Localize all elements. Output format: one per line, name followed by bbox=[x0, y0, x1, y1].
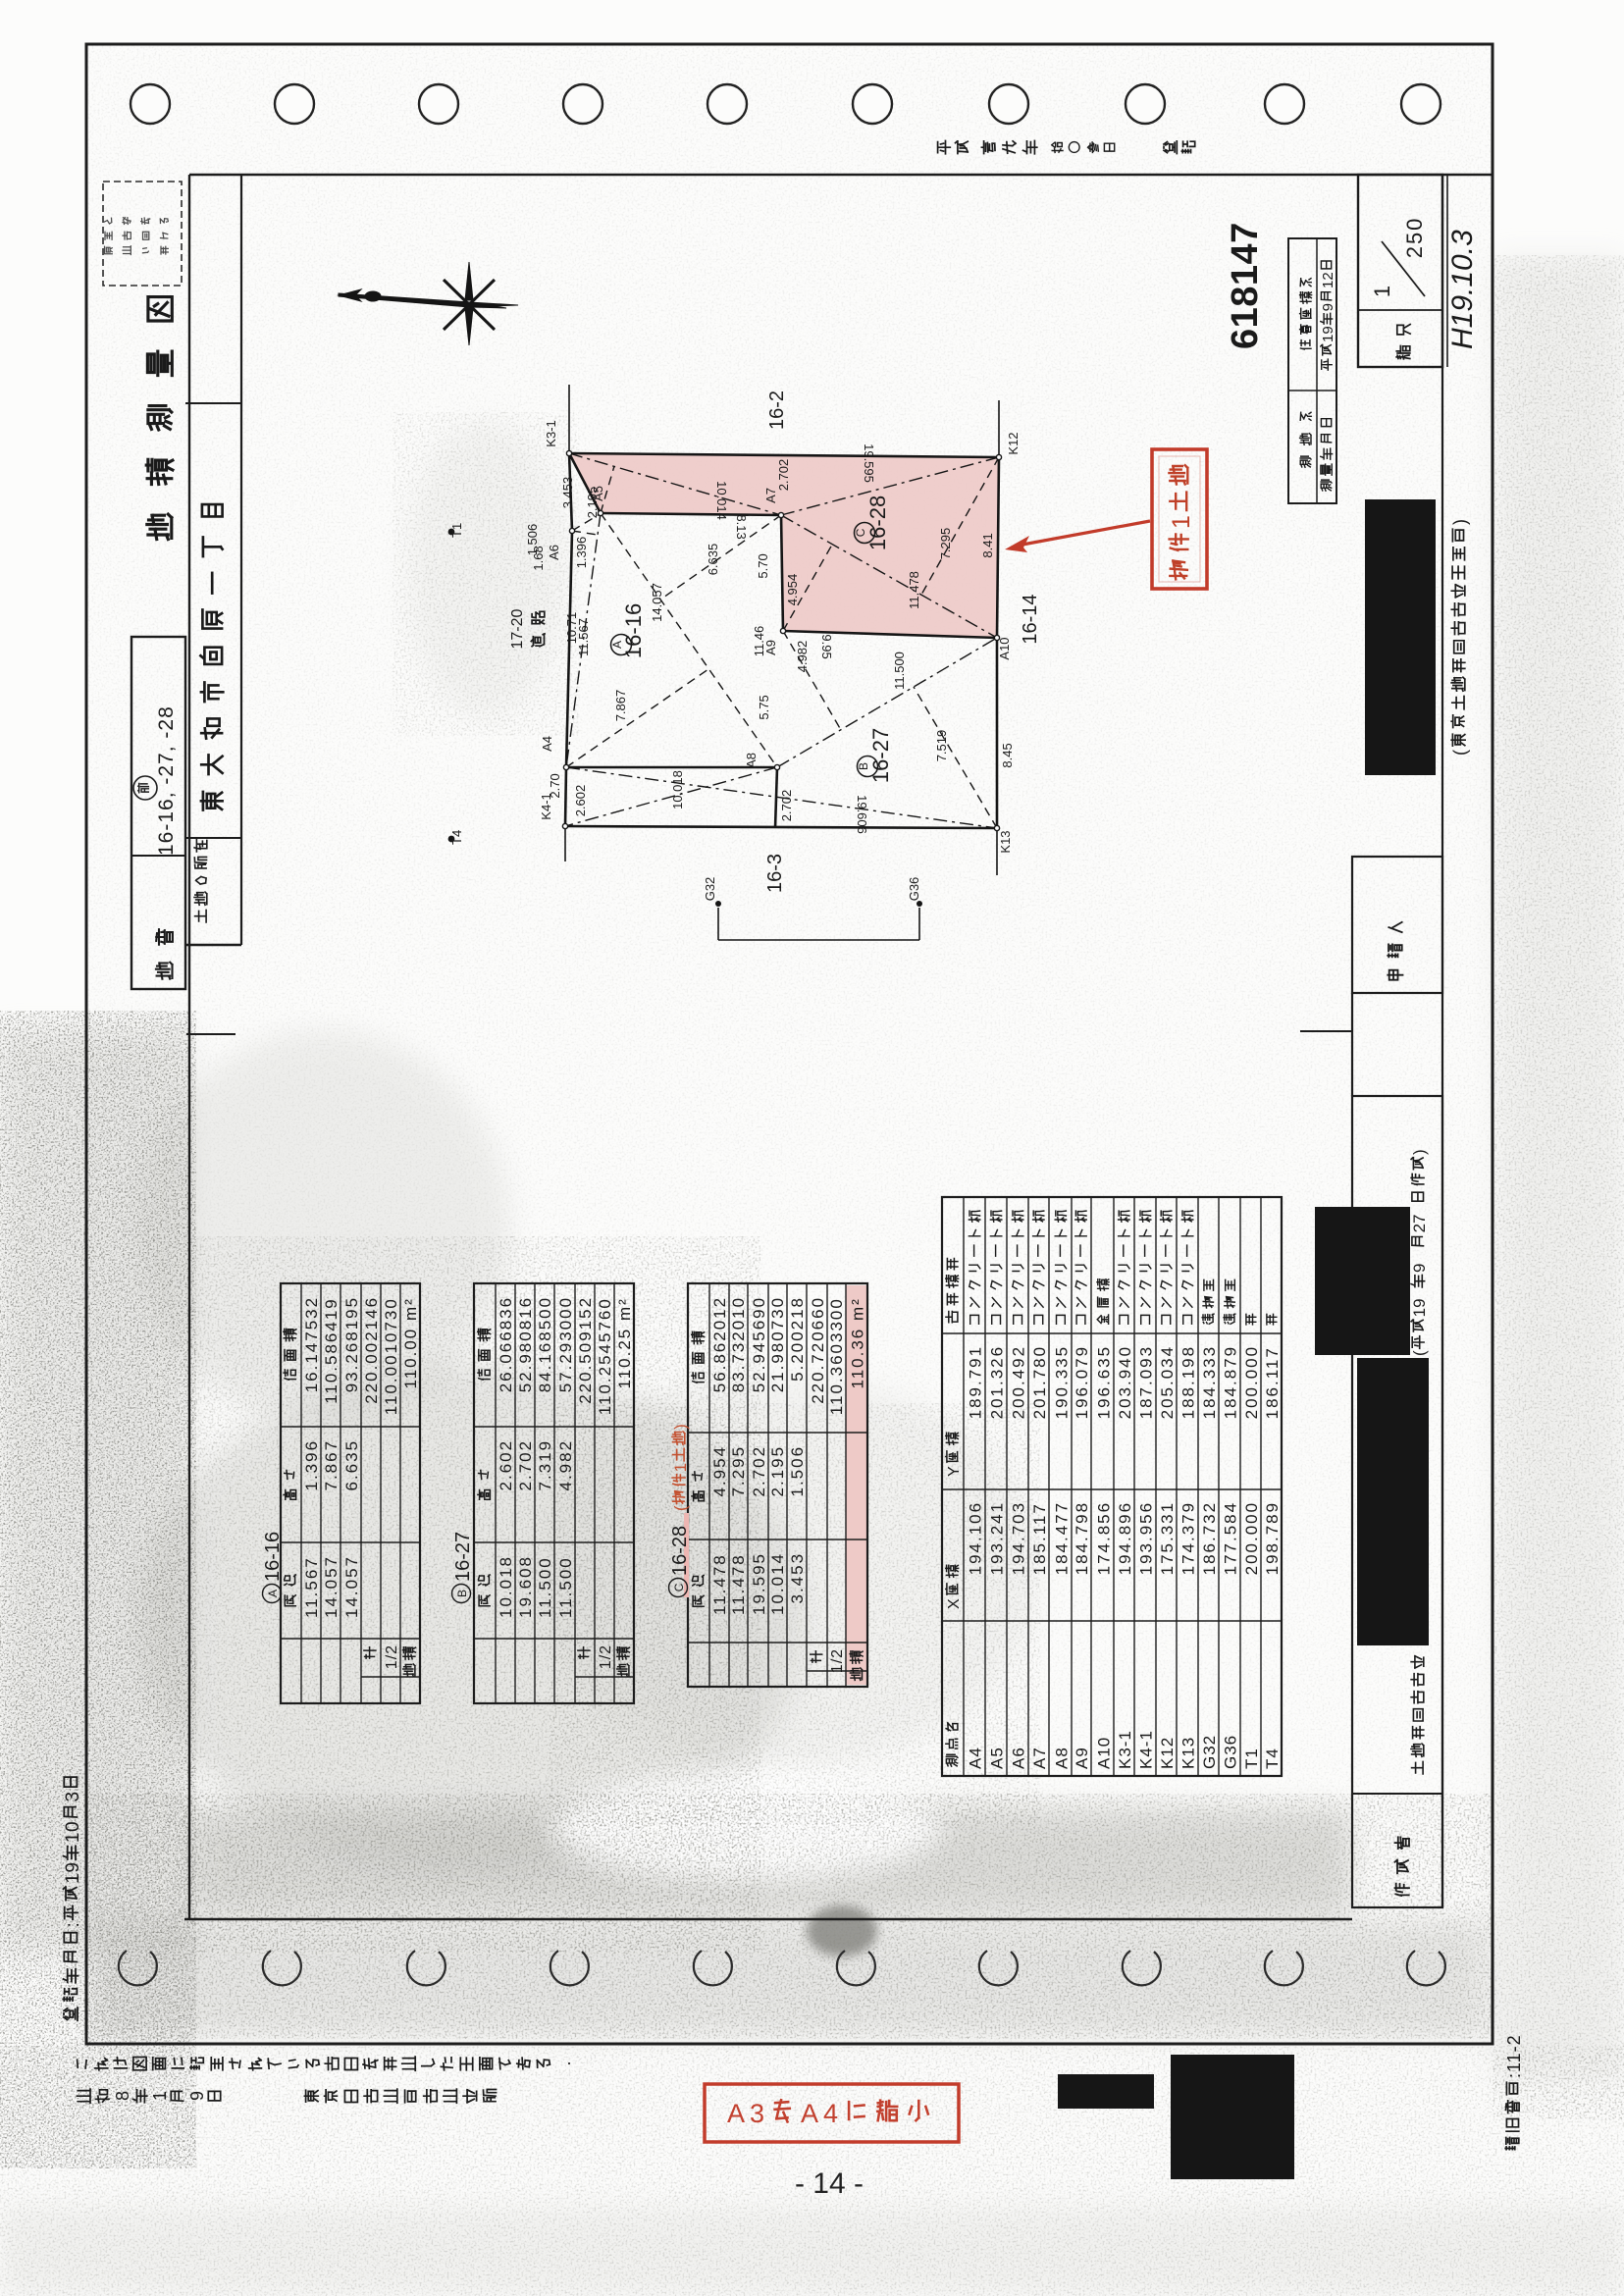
svg-text:A4: A4 bbox=[801, 2099, 843, 2128]
svg-text:A8: A8 bbox=[1052, 1747, 1071, 1769]
svg-text:9: 9 bbox=[187, 2091, 207, 2101]
svg-text:9: 9 bbox=[1410, 1264, 1429, 1273]
svg-text:185.117: 185.117 bbox=[1030, 1502, 1049, 1575]
svg-text:6.635: 6.635 bbox=[342, 1439, 361, 1491]
svg-text:56.862012: 56.862012 bbox=[710, 1296, 729, 1392]
svg-text:4.982: 4.982 bbox=[795, 641, 810, 673]
svg-text:196.079: 196.079 bbox=[1073, 1345, 1091, 1419]
svg-text:): ) bbox=[1450, 518, 1470, 525]
svg-text:2.702: 2.702 bbox=[516, 1439, 535, 1491]
svg-text:5.200218: 5.200218 bbox=[788, 1296, 807, 1382]
svg-text:2.70: 2.70 bbox=[548, 773, 562, 798]
svg-text:184.333: 184.333 bbox=[1200, 1345, 1219, 1419]
svg-text:83.732010: 83.732010 bbox=[729, 1296, 748, 1392]
svg-text:19: 19 bbox=[1410, 1298, 1429, 1317]
svg-text:11.567: 11.567 bbox=[576, 618, 591, 656]
svg-text:184.477: 184.477 bbox=[1052, 1501, 1071, 1575]
svg-text:(: ( bbox=[671, 1505, 690, 1511]
svg-text:7.295: 7.295 bbox=[938, 528, 953, 560]
svg-text:6.635: 6.635 bbox=[706, 544, 720, 576]
svg-text:(: ( bbox=[1450, 749, 1470, 756]
svg-text:.: . bbox=[554, 2061, 574, 2065]
svg-text:10.014: 10.014 bbox=[714, 481, 729, 520]
svg-text:K3-1: K3-1 bbox=[1116, 1730, 1134, 1769]
svg-text:1: 1 bbox=[1370, 286, 1394, 297]
svg-text:186.117: 186.117 bbox=[1263, 1346, 1282, 1419]
svg-text:19.595: 19.595 bbox=[750, 1552, 768, 1615]
svg-text:A6: A6 bbox=[1010, 1747, 1028, 1769]
svg-text:10.018: 10.018 bbox=[497, 1555, 515, 1618]
svg-text:52.980816: 52.980816 bbox=[516, 1296, 535, 1392]
svg-text:- 14 -: - 14 - bbox=[795, 2167, 864, 2200]
svg-text:220.002146: 220.002146 bbox=[362, 1296, 381, 1404]
svg-text:110.586419: 110.586419 bbox=[322, 1297, 341, 1404]
svg-text:3: 3 bbox=[63, 1791, 83, 1801]
svg-text:T1: T1 bbox=[449, 523, 464, 538]
svg-text:H19.10.3: H19.10.3 bbox=[1446, 230, 1479, 349]
svg-text:A8: A8 bbox=[744, 753, 759, 768]
svg-text:194.106: 194.106 bbox=[967, 1501, 985, 1575]
svg-text:A9: A9 bbox=[1073, 1747, 1091, 1769]
svg-text:188.198: 188.198 bbox=[1179, 1345, 1198, 1419]
svg-text:K13: K13 bbox=[998, 830, 1013, 853]
svg-text:A: A bbox=[266, 1590, 280, 1597]
svg-text:10.014: 10.014 bbox=[768, 1552, 787, 1615]
svg-text:G36: G36 bbox=[1222, 1735, 1240, 1769]
svg-text:): ) bbox=[1410, 1149, 1429, 1155]
svg-text:A4: A4 bbox=[967, 1747, 985, 1769]
svg-text:16-16: 16-16 bbox=[621, 603, 646, 658]
svg-text:7.867: 7.867 bbox=[613, 690, 628, 722]
svg-text:X: X bbox=[946, 1596, 963, 1609]
svg-text:B: B bbox=[455, 1590, 469, 1597]
svg-text:12: 12 bbox=[1320, 272, 1336, 288]
svg-text:14.057: 14.057 bbox=[342, 1555, 361, 1618]
svg-text:205.034: 205.034 bbox=[1158, 1345, 1177, 1419]
svg-text:11.500: 11.500 bbox=[556, 1556, 575, 1618]
svg-text:250: 250 bbox=[1402, 217, 1427, 259]
svg-text:11.500: 11.500 bbox=[892, 652, 907, 690]
svg-text:A10: A10 bbox=[997, 637, 1012, 659]
svg-text:8: 8 bbox=[113, 2091, 132, 2101]
svg-text:T1: T1 bbox=[1242, 1748, 1261, 1769]
svg-text:1/2: 1/2 bbox=[829, 1648, 846, 1673]
svg-text:187.093: 187.093 bbox=[1137, 1345, 1156, 1419]
svg-text:1/2: 1/2 bbox=[384, 1644, 400, 1669]
svg-text:A6: A6 bbox=[547, 545, 561, 560]
svg-text:11.46: 11.46 bbox=[752, 626, 766, 657]
svg-text:): ) bbox=[671, 1424, 690, 1430]
svg-text:2.602: 2.602 bbox=[573, 785, 588, 817]
svg-text:200.000: 200.000 bbox=[1242, 1345, 1261, 1419]
svg-text:110.25 m²: 110.25 m² bbox=[615, 1297, 634, 1388]
svg-text:16-2: 16-2 bbox=[766, 391, 788, 430]
svg-text:11.478: 11.478 bbox=[907, 571, 921, 609]
svg-text:220.509152: 220.509152 bbox=[576, 1296, 595, 1404]
svg-text:16-3: 16-3 bbox=[764, 854, 786, 893]
svg-text:7.519: 7.519 bbox=[934, 730, 949, 762]
svg-text:3.453: 3.453 bbox=[560, 477, 575, 509]
svg-text:11.567: 11.567 bbox=[302, 1556, 321, 1618]
svg-text:19.606: 19.606 bbox=[855, 795, 869, 834]
svg-text:110.0010730: 110.0010730 bbox=[382, 1297, 400, 1415]
svg-text:1.506: 1.506 bbox=[788, 1445, 807, 1497]
svg-text:52.945690: 52.945690 bbox=[750, 1296, 768, 1392]
svg-text:16-27: 16-27 bbox=[868, 728, 893, 783]
svg-text:93.268195: 93.268195 bbox=[342, 1296, 361, 1392]
svg-text:G32: G32 bbox=[703, 877, 717, 902]
svg-text:174.856: 174.856 bbox=[1094, 1501, 1113, 1575]
svg-text:7.319: 7.319 bbox=[536, 1439, 554, 1491]
svg-text:17-20: 17-20 bbox=[509, 608, 526, 649]
svg-text:220.720660: 220.720660 bbox=[809, 1296, 827, 1404]
svg-text:11.478: 11.478 bbox=[710, 1553, 729, 1615]
svg-text:14.057: 14.057 bbox=[322, 1555, 341, 1618]
svg-text:(: ( bbox=[1410, 1350, 1429, 1356]
svg-text:21.980730: 21.980730 bbox=[768, 1296, 787, 1392]
svg-text:4.954: 4.954 bbox=[710, 1445, 729, 1497]
svg-text:26.066836: 26.066836 bbox=[497, 1296, 515, 1392]
svg-text:K12: K12 bbox=[1158, 1737, 1177, 1769]
svg-text:1: 1 bbox=[150, 2091, 170, 2101]
svg-text:Y: Y bbox=[946, 1464, 963, 1477]
svg-text:184.798: 184.798 bbox=[1073, 1501, 1091, 1575]
svg-text:201.326: 201.326 bbox=[988, 1345, 1007, 1419]
svg-text:194.703: 194.703 bbox=[1010, 1501, 1028, 1575]
svg-text:8.13: 8.13 bbox=[734, 514, 749, 539]
svg-text:174.379: 174.379 bbox=[1179, 1501, 1198, 1575]
svg-text:G32: G32 bbox=[1200, 1735, 1219, 1769]
svg-text:K12: K12 bbox=[1006, 432, 1021, 454]
svg-text:8.41: 8.41 bbox=[980, 533, 995, 557]
svg-text:618147: 618147 bbox=[1225, 222, 1266, 349]
svg-text:16-28: 16-28 bbox=[865, 496, 890, 550]
svg-text:200.492: 200.492 bbox=[1010, 1345, 1028, 1419]
svg-text:1.68: 1.68 bbox=[531, 546, 546, 570]
svg-text:T4: T4 bbox=[449, 830, 464, 845]
svg-text:2.602: 2.602 bbox=[497, 1439, 515, 1491]
svg-text::: : bbox=[63, 1922, 83, 1928]
svg-text:110.2545760: 110.2545760 bbox=[596, 1297, 614, 1415]
svg-text:16.147532: 16.147532 bbox=[302, 1296, 321, 1392]
svg-text:1.396: 1.396 bbox=[302, 1439, 321, 1491]
svg-text:11.478: 11.478 bbox=[729, 1553, 748, 1615]
svg-text:A5: A5 bbox=[988, 1747, 1007, 1769]
svg-text:2.195: 2.195 bbox=[768, 1445, 787, 1497]
svg-text:1/2: 1/2 bbox=[598, 1644, 614, 1669]
svg-text:2.702: 2.702 bbox=[750, 1445, 768, 1497]
svg-text:203.940: 203.940 bbox=[1116, 1345, 1134, 1419]
svg-text:110.00 m²: 110.00 m² bbox=[401, 1297, 420, 1388]
svg-text:194.896: 194.896 bbox=[1116, 1501, 1134, 1575]
svg-text:5.75: 5.75 bbox=[757, 695, 771, 719]
svg-text:1: 1 bbox=[671, 1463, 690, 1472]
svg-text:193.241: 193.241 bbox=[988, 1501, 1007, 1575]
svg-text:196.635: 196.635 bbox=[1094, 1345, 1113, 1419]
svg-text:16-16: 16-16 bbox=[262, 1532, 284, 1582]
svg-text:186.732: 186.732 bbox=[1200, 1501, 1219, 1575]
svg-text:7.867: 7.867 bbox=[322, 1439, 341, 1491]
svg-text:4.982: 4.982 bbox=[556, 1439, 575, 1491]
svg-text:A10: A10 bbox=[1094, 1737, 1113, 1769]
svg-text:110.36 m²: 110.36 m² bbox=[849, 1297, 867, 1388]
svg-text:57.293000: 57.293000 bbox=[556, 1296, 575, 1392]
svg-text:16-14: 16-14 bbox=[1020, 594, 1041, 644]
svg-text:2.702: 2.702 bbox=[779, 790, 794, 822]
svg-text:110.3603300: 110.3603300 bbox=[827, 1297, 846, 1415]
svg-text:11.500: 11.500 bbox=[536, 1556, 554, 1618]
svg-text:84.168500: 84.168500 bbox=[536, 1296, 554, 1392]
svg-text:K3-1: K3-1 bbox=[544, 420, 558, 446]
svg-text:14.057: 14.057 bbox=[650, 583, 664, 622]
svg-text:184.879: 184.879 bbox=[1222, 1345, 1240, 1419]
svg-text:19: 19 bbox=[63, 1862, 83, 1884]
svg-text:10: 10 bbox=[63, 1821, 83, 1843]
svg-text:G36: G36 bbox=[907, 877, 921, 902]
svg-text:19.595: 19.595 bbox=[862, 444, 876, 483]
svg-text:201.780: 201.780 bbox=[1030, 1345, 1049, 1419]
svg-text:16-16, -27, -28: 16-16, -27, -28 bbox=[155, 705, 178, 856]
svg-text:10.018: 10.018 bbox=[670, 770, 685, 809]
svg-text:175.331: 175.331 bbox=[1158, 1501, 1177, 1575]
svg-text:C: C bbox=[672, 1583, 686, 1592]
svg-text:1.396: 1.396 bbox=[574, 537, 589, 569]
svg-text:A7: A7 bbox=[1030, 1747, 1049, 1769]
svg-text:4.954: 4.954 bbox=[785, 574, 800, 606]
svg-text:19: 19 bbox=[1320, 326, 1336, 342]
svg-text:9.95: 9.95 bbox=[819, 634, 834, 658]
svg-text:A4: A4 bbox=[540, 736, 554, 752]
svg-text:K4-1: K4-1 bbox=[1137, 1730, 1156, 1769]
svg-text:1: 1 bbox=[1168, 513, 1195, 529]
svg-text:27: 27 bbox=[1410, 1214, 1429, 1232]
svg-text:200.000: 200.000 bbox=[1242, 1501, 1261, 1575]
svg-text:190.335: 190.335 bbox=[1052, 1345, 1071, 1419]
svg-text:3.453: 3.453 bbox=[788, 1552, 807, 1604]
svg-text:8.45: 8.45 bbox=[1000, 743, 1015, 767]
svg-text:9: 9 bbox=[1320, 303, 1336, 311]
svg-text:19.608: 19.608 bbox=[516, 1555, 535, 1618]
svg-text:T4: T4 bbox=[1263, 1748, 1282, 1769]
svg-text:2.195: 2.195 bbox=[585, 487, 600, 519]
svg-text:K13: K13 bbox=[1179, 1737, 1198, 1769]
svg-text:16-28: 16-28 bbox=[669, 1526, 691, 1576]
svg-text:A3: A3 bbox=[727, 2099, 769, 2128]
svg-text:189.791: 189.791 bbox=[967, 1345, 985, 1419]
svg-text:5.70: 5.70 bbox=[756, 553, 770, 578]
svg-text::11-2: :11-2 bbox=[1504, 2034, 1524, 2078]
svg-text:198.789: 198.789 bbox=[1263, 1501, 1282, 1575]
svg-text:16-27: 16-27 bbox=[452, 1532, 474, 1582]
svg-text:7.295: 7.295 bbox=[729, 1445, 748, 1497]
svg-text:177.584: 177.584 bbox=[1222, 1501, 1240, 1575]
svg-text:2.702: 2.702 bbox=[776, 459, 791, 492]
svg-text:193.956: 193.956 bbox=[1137, 1501, 1156, 1575]
